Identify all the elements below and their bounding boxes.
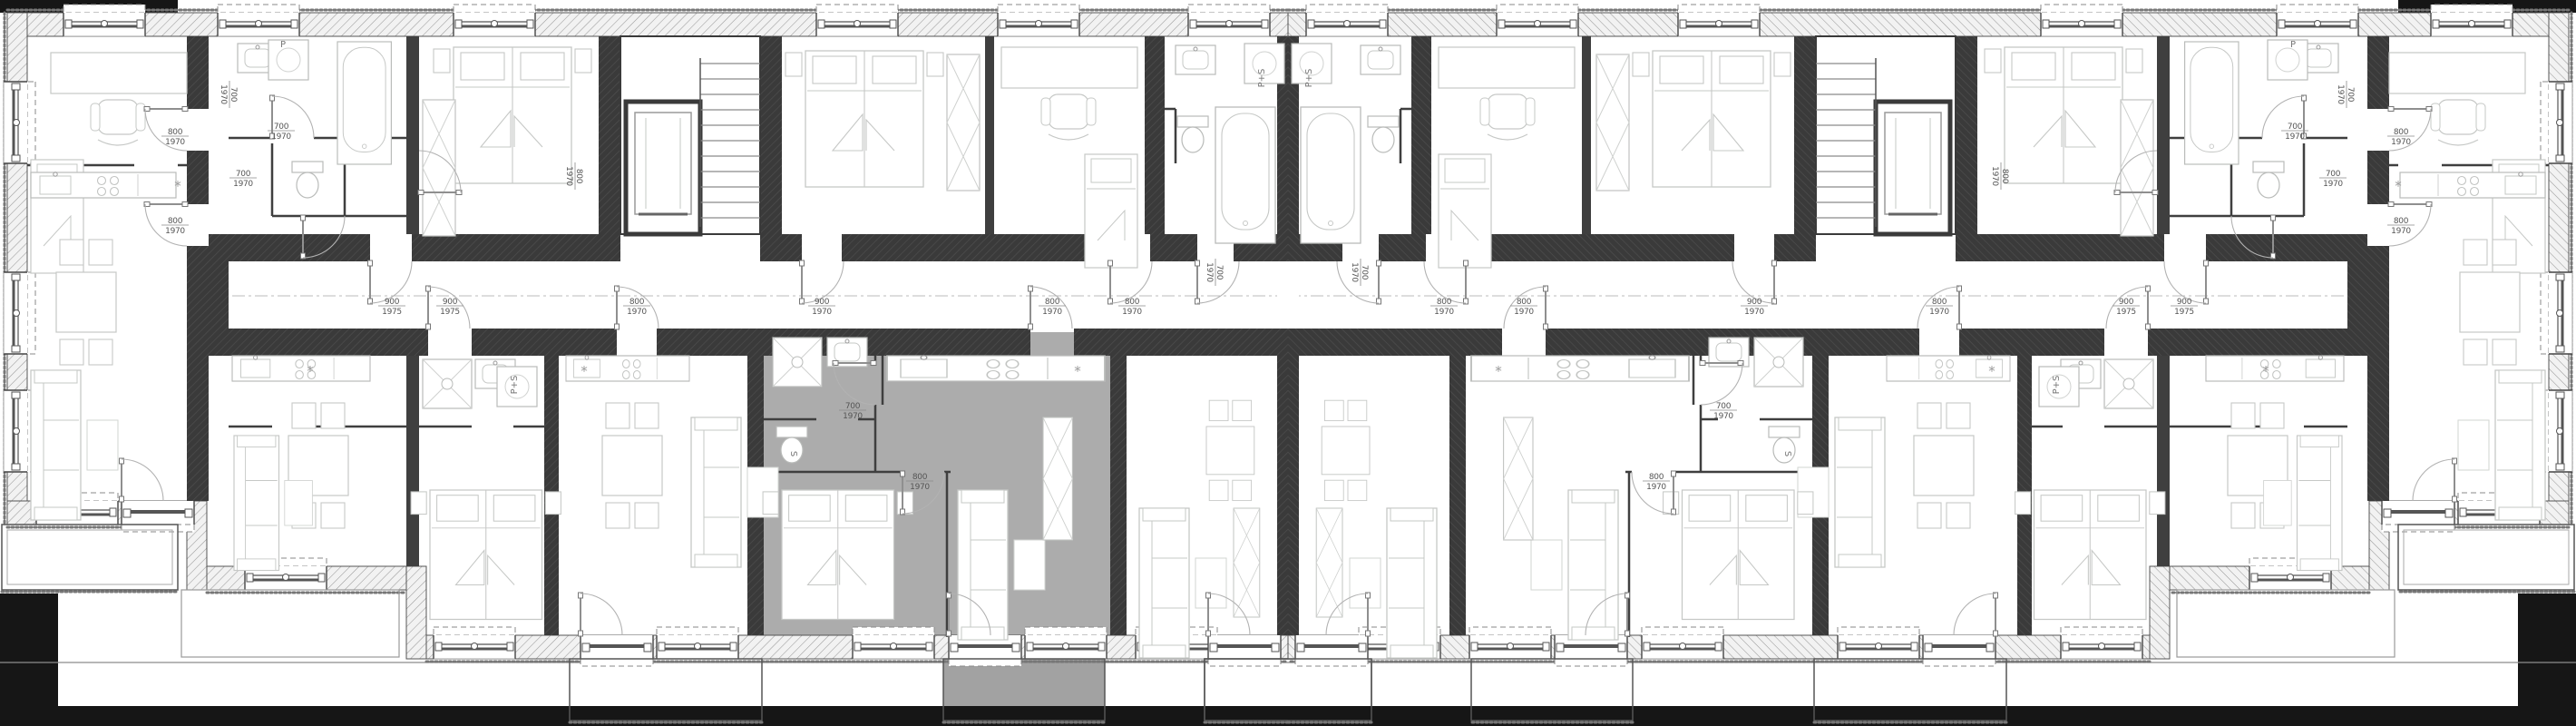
svg-text:1970: 1970	[165, 138, 185, 147]
svg-text:1970: 1970	[1990, 166, 1999, 186]
svg-text:900: 900	[385, 298, 400, 307]
svg-text:1975: 1975	[382, 308, 402, 317]
svg-text:800: 800	[2394, 217, 2409, 226]
svg-text:1970: 1970	[812, 308, 832, 317]
svg-text:700: 700	[845, 402, 861, 411]
kitchen-appliance-mark: *	[2262, 363, 2269, 379]
appliance-label: S	[788, 451, 798, 456]
appliance-label: P	[280, 40, 286, 50]
svg-text:1975: 1975	[2116, 308, 2136, 317]
svg-text:800: 800	[2000, 169, 2009, 184]
kitchen-appliance-mark: *	[1495, 363, 1502, 379]
svg-text:700: 700	[274, 123, 289, 132]
svg-text:1975: 1975	[440, 308, 460, 317]
svg-text:1975: 1975	[2174, 308, 2194, 317]
svg-text:1970: 1970	[219, 84, 228, 104]
svg-text:1970: 1970	[1929, 308, 1949, 317]
kitchen-appliance-mark: *	[307, 363, 314, 379]
svg-text:800: 800	[1932, 298, 1947, 307]
svg-text:1970: 1970	[1122, 308, 1142, 317]
svg-text:1970: 1970	[2336, 84, 2345, 104]
kitchen-appliance-mark: *	[174, 178, 181, 194]
floorplan-page: 8001970800197070019707001970700197080019…	[0, 0, 2576, 726]
svg-text:900: 900	[2119, 298, 2134, 307]
svg-text:1970: 1970	[1713, 412, 1733, 421]
svg-text:1970: 1970	[271, 132, 291, 142]
svg-text:700: 700	[2288, 123, 2303, 132]
svg-text:1970: 1970	[1205, 262, 1214, 282]
kitchen-appliance-mark: *	[581, 363, 588, 379]
svg-text:1970: 1970	[843, 412, 863, 421]
svg-text:1970: 1970	[2285, 132, 2305, 142]
elevator-car	[635, 113, 691, 214]
appliance-label: P+S	[510, 376, 520, 395]
svg-text:700: 700	[1360, 265, 1369, 280]
svg-text:1970: 1970	[165, 227, 185, 236]
svg-text:1970: 1970	[1646, 483, 1666, 492]
svg-text:700: 700	[229, 87, 238, 103]
svg-text:1970: 1970	[627, 308, 647, 317]
svg-text:1970: 1970	[1350, 262, 1359, 282]
svg-text:800: 800	[1125, 298, 1140, 307]
svg-text:800: 800	[168, 128, 183, 137]
appliance-label: S	[1782, 451, 1792, 456]
svg-text:700: 700	[2346, 87, 2355, 103]
svg-text:800: 800	[574, 169, 583, 184]
svg-text:900: 900	[815, 298, 830, 307]
svg-text:1970: 1970	[2391, 138, 2411, 147]
svg-text:900: 900	[1747, 298, 1762, 307]
svg-text:1970: 1970	[1042, 308, 1062, 317]
kitchen-appliance-mark: *	[2395, 178, 2402, 194]
svg-text:1970: 1970	[2391, 227, 2411, 236]
appliance-label: P	[2290, 40, 2296, 50]
svg-text:800: 800	[168, 217, 183, 226]
svg-text:700: 700	[236, 170, 251, 179]
svg-text:700: 700	[1215, 265, 1224, 280]
appliance-label: P+S	[1257, 69, 1267, 88]
svg-text:800: 800	[1045, 298, 1060, 307]
kitchen-appliance-mark: *	[1988, 363, 1995, 379]
appliance-label: P+S	[2052, 376, 2062, 395]
svg-text:900: 900	[443, 298, 458, 307]
svg-text:800: 800	[1437, 298, 1452, 307]
svg-text:700: 700	[2326, 170, 2341, 179]
svg-text:1970: 1970	[1514, 308, 1534, 317]
svg-text:800: 800	[1649, 473, 1664, 482]
mask-corner	[0, 594, 58, 726]
svg-text:1970: 1970	[910, 483, 930, 492]
svg-text:800: 800	[912, 473, 928, 482]
svg-text:1970: 1970	[1434, 308, 1454, 317]
svg-text:800: 800	[1517, 298, 1532, 307]
kitchen-appliance-mark: *	[1074, 363, 1081, 379]
svg-text:900: 900	[2177, 298, 2192, 307]
svg-text:1970: 1970	[233, 180, 253, 189]
svg-text:800: 800	[2394, 128, 2409, 137]
svg-text:1970: 1970	[2323, 180, 2343, 189]
floorplan-canvas: 8001970800197070019707001970700197080019…	[0, 0, 2576, 726]
staircase	[620, 36, 760, 234]
appliance-label: P+S	[1304, 69, 1314, 88]
svg-text:800: 800	[629, 298, 645, 307]
svg-text:700: 700	[1716, 402, 1732, 411]
svg-text:1970: 1970	[1744, 308, 1764, 317]
svg-text:1970: 1970	[564, 166, 573, 186]
